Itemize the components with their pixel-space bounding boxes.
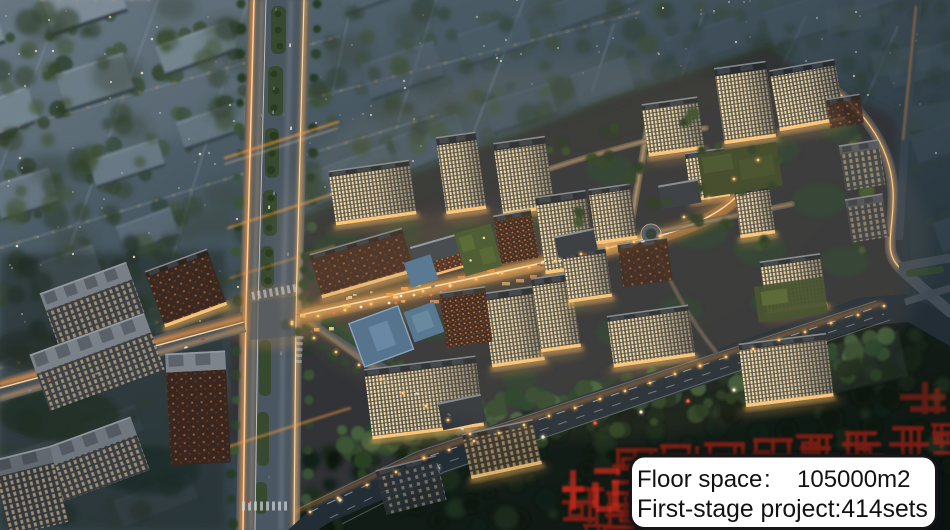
svg-text:First-stage project:414sets: First-stage project:414sets: [637, 496, 928, 523]
